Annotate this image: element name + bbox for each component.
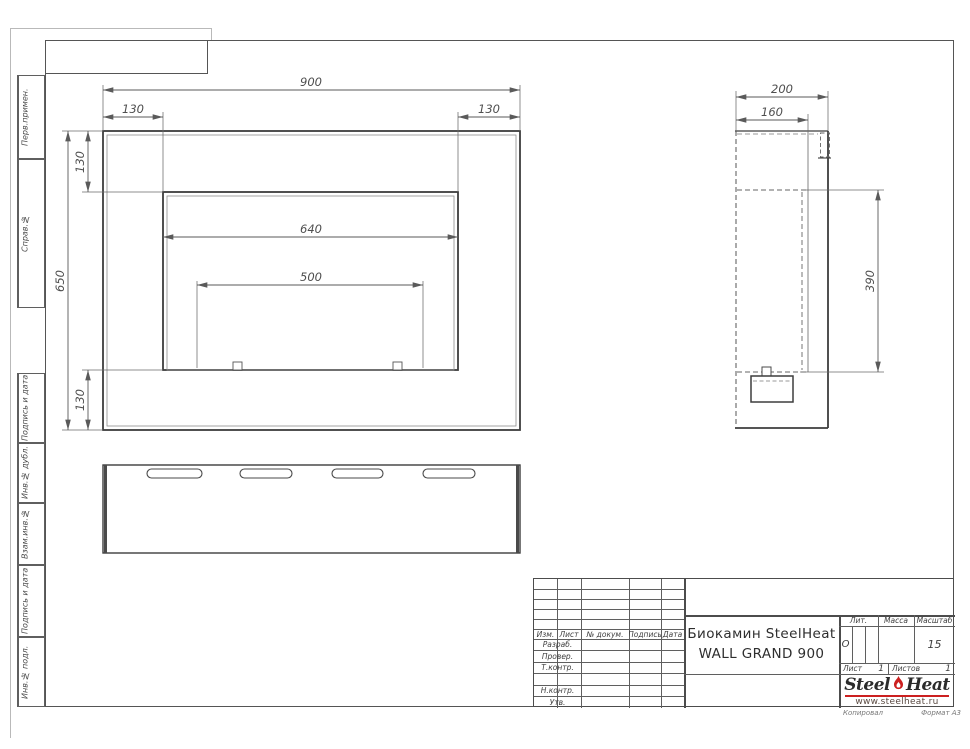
- logo-word-heat: Heat: [906, 677, 950, 694]
- dim-opening-width: 640: [300, 222, 322, 236]
- document-title-line2: WALL GRAND 900: [699, 645, 825, 665]
- tb-sheets-label: Листов: [892, 664, 920, 673]
- vent-slot: [423, 469, 475, 478]
- tb-col-list: Лист: [557, 629, 581, 639]
- dim-right-offset: 130: [478, 102, 500, 116]
- document-title-line1: Биокамин SteelHeat: [687, 625, 835, 645]
- logo-wordmark: Steel Heat: [844, 675, 949, 694]
- dim-overall-depth: 200: [771, 82, 793, 96]
- tb-lit-label: Лит.: [839, 615, 878, 626]
- tb-row-nkontr: Н.контр.: [534, 685, 581, 696]
- logo-url: www.steelheat.ru: [855, 697, 938, 707]
- dim-overall-width: 900: [300, 75, 322, 89]
- tb-row-razrab: Разраб.: [534, 639, 581, 650]
- tb-col-podpis: Подпись: [629, 629, 661, 639]
- tb-sheets-value: 1: [945, 664, 951, 674]
- document-title: Биокамин SteelHeat WALL GRAND 900: [684, 615, 839, 674]
- side-view-dimensions: 200 160 390: [736, 82, 884, 372]
- tb-mass-label: Масса: [878, 615, 914, 626]
- dim-cavity-height: 390: [863, 270, 877, 292]
- tb-sheet-label: Лист: [843, 664, 862, 673]
- tb-scale-label: Масштаб: [914, 615, 955, 626]
- tb-lit-value: О: [839, 626, 852, 663]
- title-block: Изм. Лист № докум. Подпись Дата Разраб. …: [533, 578, 954, 707]
- drawing-sheet: Перв.примен. Справ.№ Подпись и дата Инв.…: [0, 0, 970, 749]
- flame-icon: [892, 675, 905, 694]
- tb-row-utv: Утв.: [534, 696, 581, 708]
- dim-left-offset: 130: [122, 102, 144, 116]
- dim-burner-width: 500: [300, 270, 322, 284]
- tb-col-izm: Изм.: [534, 629, 557, 639]
- tb-scale-value: 15: [914, 626, 955, 663]
- steelheat-logo: Steel Heat www.steelheat.ru: [839, 674, 955, 708]
- tb-sheets-cell: Листов 1: [888, 663, 955, 674]
- vent-slot: [240, 469, 292, 478]
- copied-note: Копировал: [833, 709, 893, 717]
- tb-sheet-cell: Лист 1: [839, 663, 888, 674]
- format-note: Формат А3: [913, 709, 961, 717]
- tb-col-docnum: № докум.: [581, 629, 629, 639]
- dim-bottom-offset: 130: [73, 389, 87, 411]
- tb-sheet-value: 1: [878, 664, 884, 674]
- tb-col-data: Дата: [661, 629, 684, 639]
- dim-inner-depth: 160: [761, 105, 783, 119]
- vent-slot: [147, 469, 202, 478]
- tb-row-prover: Провер.: [534, 650, 581, 662]
- vent-slot: [332, 469, 383, 478]
- dim-overall-height: 650: [53, 270, 67, 292]
- side-view: [735, 131, 831, 428]
- logo-word-steel: Steel: [844, 677, 890, 694]
- tb-row-tkontr: Т.контр.: [534, 662, 581, 673]
- bottom-view: [103, 465, 520, 553]
- dim-top-offset: 130: [73, 151, 87, 173]
